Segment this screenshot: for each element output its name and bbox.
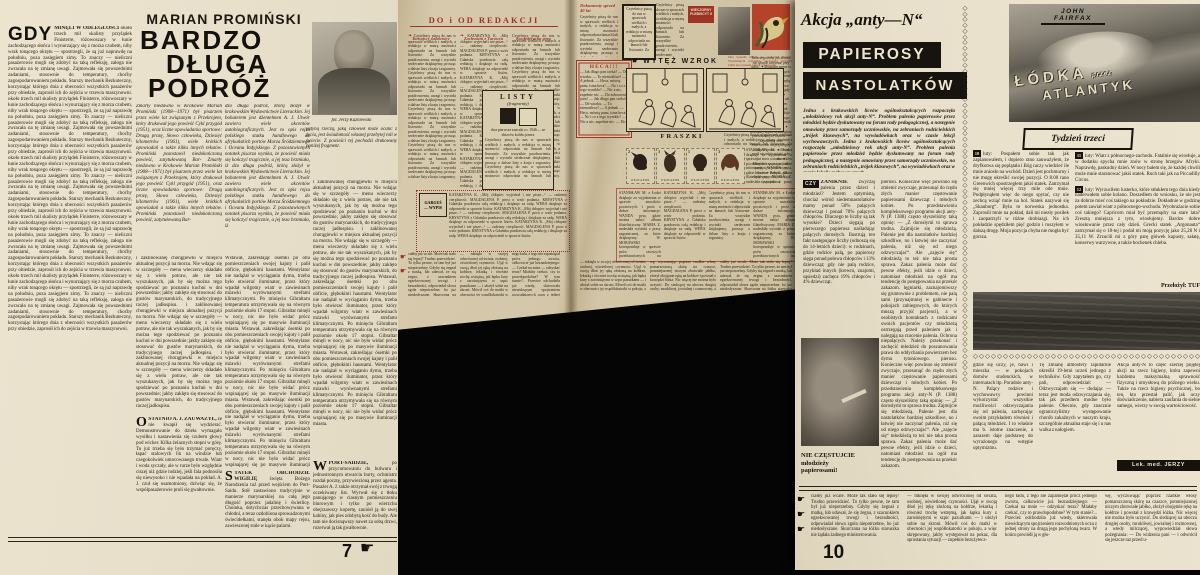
serial-strip-column: — mknęła w swojej odwróconej od świata, … (907, 494, 997, 556)
listy-box: LISTY (fragmenty) dwa pierwsze znaczki z… (482, 90, 554, 190)
diary-day-number: 11 (1075, 152, 1083, 159)
serial-strip-column: nego ładu, z tego nie zapamiętał prócz j… (1005, 494, 1097, 556)
drop-cap: S (225, 471, 233, 482)
body-column-a: i zaklinowanej chorągiewki w miejscu akt… (136, 256, 222, 414)
letters-text: KATARZYNA K. „Mój chłopiec wyjechał i ni… (449, 193, 567, 243)
serial-strip-column: ciałby już wcale. Może tak stało się lep… (408, 252, 456, 296)
puzzle-title-text: WYTĘŻ WZROK (643, 58, 718, 65)
caption-line: NIE CZĘSTUJCIE (801, 452, 885, 460)
title-word: przez (1092, 70, 1113, 78)
campaign-kicker: Akcja „anty—N“ (801, 10, 961, 30)
fraszki-text: Czytelnicy piszą do nas w sprawach wielk… (724, 133, 792, 145)
week-subtitle-box: Tydzień trzeci (1022, 128, 1134, 150)
diary-day-number: 10 (973, 150, 981, 157)
pointing-hand-icon: ☛ (400, 253, 406, 261)
dog-stamp: 3 БЪЛГАРИЯ (716, 148, 745, 184)
photo-caption: fot. Jerzy Kuźniewski (306, 118, 397, 123)
zigzag-divider-horizontal: ◇◇◇◇◇◇◇◇◇◇◇◇◇◇◇◇◇◇◇◇◇◇◇◇◇◇◇◇◇◇◇◇◇◇◇◇◇◇◇◇… (973, 352, 1200, 360)
stamp-value: 1 (688, 149, 690, 154)
fraszki-heading: FRASZKI (644, 133, 720, 140)
drop-cap: W (313, 461, 327, 472)
letter-title: Konfederacka góra (516, 36, 560, 41)
plebiscyt-line: PLEBISCYT II (688, 12, 714, 16)
stamp-dark (500, 108, 516, 124)
pointing-hand-icon: ☛ (400, 267, 406, 275)
puzzle-instructions: Oba rysunki różnią się pozornie niczym. … (728, 55, 792, 68)
news-photo (718, 7, 750, 55)
section-text: święta Bożego Narodzenia tuż przed wejśc… (225, 477, 310, 529)
caption-line: papierosami! (801, 467, 885, 475)
hand-cigarette-photo (801, 338, 879, 446)
diary-entry: luty: Pospałem sobie tak jak zaplanowałe… (973, 152, 1069, 240)
letters-text: Czytelnicy piszą do nas w sprawach wielk… (709, 191, 751, 259)
stamp-country: БЪЛГАРИЯ (657, 179, 684, 182)
document-text: Czytelnicy piszą do nas w sprawach wielk… (625, 7, 653, 51)
section-text: że nie kwapił się wydzierać. Demonstrowa… (136, 417, 222, 493)
body-column-b: Wstawał, zakreślając ósemki po obu pomie… (225, 256, 310, 468)
pointing-hand-icon: ☛ (797, 507, 809, 522)
stamp-pair (485, 108, 551, 126)
serial-strip-column: — mknęła w swojej odwróconej od świata, … (580, 260, 646, 292)
rooster-illustration (752, 4, 790, 50)
page-number: 10 (823, 542, 844, 564)
article-left-column: GDYMINĘLI W ODLEGŁOŚCI około trzech mil … (8, 26, 132, 568)
stamp-value: 3 (718, 149, 720, 154)
pointing-hand-icon: ☛ (632, 56, 639, 65)
section-header-redakcja: DO i OD REDAKCJI (410, 15, 558, 27)
stamps-note: STANISŁAW M. z Łodzi dziękuje za wyjaśni… (746, 148, 792, 184)
pointing-hand-icon: ☛ (797, 492, 809, 507)
letters-column: Czytelnicy piszą do nas w sprawach wielk… (580, 15, 618, 57)
dog-stamp: 1 БЪЛГАРИЯ (686, 148, 715, 184)
stamp-country: БЪЛГАРИЯ (627, 179, 654, 182)
drop-word: GDY (8, 26, 52, 43)
lead-bold: MINĘLI W ODLEGŁOŚCI (54, 26, 119, 31)
stamp-country: БЪЛГАРИЯ (687, 179, 714, 182)
diary-column-left: 10luty: Pospałem sobie tak jak zaplanowa… (973, 150, 1069, 284)
diary-day-number: 12 (1075, 186, 1083, 193)
stamp-value: 2 (628, 149, 630, 154)
drop-word: CZY (803, 180, 819, 188)
body-column-5: Akcja anty-N to część szerzej pojętej ak… (1117, 363, 1200, 457)
photo-caption: NIE CZĘSTUJCIE młodzieży papierosami! (801, 452, 885, 475)
body-text: pierosu. Konieczne więc powinno się zmie… (881, 357, 957, 468)
lead-paragraph: Jedna z krakowskich liceów ogólnokształc… (803, 108, 955, 172)
body-text: i zaklinowanej chorągiewki w miejscu akt… (313, 180, 397, 280)
gargus-label-box: GARGUŚ — WYPIS (419, 193, 447, 217)
plebiscyt-label: WIECZORNY PLEBISCYT II (688, 6, 714, 23)
letter-title-red: Dokumenty sprzed 40 lat (580, 3, 618, 13)
body-text: pierosu. Konieczne więc powinno się zmie… (881, 180, 957, 291)
serial-strip-column: nego ładu, z tego nie zapamiętał prócz j… (512, 252, 560, 296)
body-text: zwyczaj palenia przez dzieci i młodzież?… (803, 180, 875, 285)
run-in-head: ZANIKNIE (821, 180, 848, 185)
spot-difference-drawing-left (626, 68, 704, 132)
magazine-scan: GDYMINĘLI W ODLEGŁOŚCI około trzech mil … (0, 0, 1200, 575)
spot-difference-drawing-right (706, 68, 784, 132)
diary-entry: luty: Wiatr z północnego-zachodu. Fataln… (1075, 154, 1200, 183)
stamp-light (519, 108, 537, 126)
intro-column-a: Zmarły niedawno w Krakowie Marian Promiń… (136, 104, 222, 252)
body-column-3: gdzie się uczy, je, bawi i mieszka — w p… (973, 363, 1033, 481)
zigzag-divider-vertical: ◇◇◇◇◇◇◇◇◇◇◇◇◇◇◇◇◇◇◇◇◇◇◇◇◇◇◇◇◇◇◇◇◇◇◇◇◇◇◇◇… (961, 6, 969, 386)
caption-line: młodzieży (801, 460, 885, 468)
body-text: lęgniarki, zaznajomiwszy się gruntownie … (881, 286, 957, 362)
letters-pink-box: STANISŁAW M. z Łodzi dziękuje za wyjaśni… (616, 188, 798, 262)
section-statek: STATEK OBCHODZIŁ WIGILIĘ święta Bożego N… (225, 471, 310, 539)
section-head: PORT-SAIDZIE, (329, 461, 369, 466)
pointing-hand-icon: ☛ (360, 538, 374, 558)
body-text: Wstawał, zakreślając ósemki po obu pomie… (313, 275, 397, 428)
headline-block-papierosy: PAPIEROSY (803, 42, 941, 68)
footer-rule (8, 537, 397, 542)
editor-note: jedyną rzeczą, jaką człowiek może ocalić… (306, 127, 397, 177)
page-10: Akcja „anty—N“ PAPIEROSY NASTOLATKÓW Jed… (795, 0, 1200, 570)
cigarette (841, 389, 866, 403)
title-line: PODRÓŻ (148, 76, 318, 100)
author-signature: Lek. med. JERZY BIRCZYŃSKI (1117, 460, 1200, 471)
stamp-value: 3 (658, 149, 660, 154)
gargus-name: — WYPIS (420, 205, 446, 210)
lodka-title: ŁÓDKA przez ATLANTYK (1013, 59, 1135, 106)
article-title: BARDZO DŁUGA PODRÓŻ (140, 28, 318, 100)
footer-rule (799, 486, 1197, 491)
body-column-1: CZYZANIKNIE zwyczaj palenia przez dzieci… (803, 180, 875, 332)
page-gutter-shadow (564, 0, 578, 340)
middle-spread: DO i OD REDAKCJI ❧ Czytelnicy piszą do n… (398, 0, 798, 340)
letters-text: KATARZYNA K. „Mój chłopiec wyjechał i ni… (664, 191, 706, 259)
letters-text: Czytelnicy piszą do nas w sprawach wielk… (408, 34, 456, 179)
drop-cap: O (136, 417, 147, 428)
page-7: GDYMINĘLI W ODLEGŁOŚCI około trzech mil … (0, 0, 398, 575)
serial-strip-column: ciałby już wcale. Może tak stało się lep… (811, 494, 899, 540)
ocean-photo (973, 292, 1200, 350)
listy-text: Czytelnicy piszą do nas w sprawach wielk… (485, 138, 551, 178)
letters-text: STANISŁAW M. z Łodzi dziękuje za wyjaśni… (619, 191, 661, 259)
headline-block-nastolatkow: NASTOLATKÓW (803, 72, 967, 99)
document-facsimile-box: Czytelnicy piszą do nas w sprawach wielk… (622, 4, 656, 60)
letter-title: Zachwiani z Turowca (464, 36, 508, 41)
serial-strip-column: — mknęła w swojej odwróconej od świata, … (460, 252, 508, 296)
body-column-4: Tę zmianę atmosfery lapidarnie określił … (1039, 363, 1111, 481)
section-ostatnio: OSTATNIO A. J. ZAUWAŻYŁ, że nie kwapił s… (136, 417, 222, 539)
body-column-c: i zaklinowanej chorągiewki w miejscu akt… (313, 180, 397, 458)
page-number: 7 (342, 541, 352, 562)
serial-strip-column: wę, wyczuwając poprzez rzadkie włosy pom… (650, 260, 716, 292)
puzzle-title: ☛ WYTĘŻ WZROK (632, 56, 722, 65)
listy-caption: dwa pierwsze znaczki z r. 1946 — ze zbio… (485, 128, 551, 138)
body-column-2: pierosu. Konieczne więc powinno się zmie… (881, 180, 957, 478)
portrait-shoulders (318, 68, 390, 114)
serial-strip-column: ciałby już wcale. Może tak stało się lep… (720, 260, 792, 292)
author-label: JOHN FAIRFAX (1041, 8, 1105, 25)
letters-dotted-box: GARGUŚ — WYPIS KATARZYNA K. „Mój chłopie… (416, 190, 570, 252)
section-portsaid: WPORT-SAIDZIE, po przycumowaniu do bulwa… (313, 461, 397, 539)
body-text: około trzech mil skalisty przylądek Fini… (8, 26, 132, 332)
pointing-hand-icon: ☛ (797, 522, 809, 537)
diary-entry: luty: Wyrzuciłem lusterko, które stłukłe… (1075, 188, 1200, 246)
heca-jokes: — Jak długo pan czeka? — Od wtorku. — To… (580, 70, 628, 124)
author-portrait-photo (312, 22, 397, 115)
letter-title: Tarnajscy sadownicy (412, 36, 456, 41)
dog-stamp: 2 БЪЛГАРИЯ (626, 148, 655, 184)
letters-column: ❧ Czytelnicy piszą do nas w sprawach wie… (408, 34, 456, 188)
intro-column-b: dzo długa podróż, którą złożył w krakows… (225, 104, 310, 252)
translator-credit: Przełożył: TUF (1125, 283, 1200, 289)
listy-subtitle: (fragmenty) (485, 101, 551, 106)
stamp-country: БЪЛГАРИЯ (717, 179, 744, 182)
listy-title: LISTY (485, 93, 551, 101)
pointing-hand-icons: ☛ ☛ ☛ (797, 492, 809, 537)
diary-column-right: 11luty: Wiatr z północnego-zachodu. Fata… (1075, 152, 1200, 282)
letters-text: STANISŁAW M. z Łodzi dziękuje za wyjaśni… (753, 191, 795, 259)
letters-column: Czytelnicy piszą do nas w sprawach wielk… (656, 3, 684, 57)
serial-strip-column: wę, wyczuwając poprzez rzadkie włosy pom… (1105, 494, 1197, 556)
dog-stamp: 3 БЪЛГАРИЯ (656, 148, 685, 184)
section-head: STATNIO A. J. ZAUWAŻYŁ, (148, 417, 216, 422)
heca-box: HECA!!! — Jak długo pan czeka? — Od wtor… (576, 60, 632, 138)
